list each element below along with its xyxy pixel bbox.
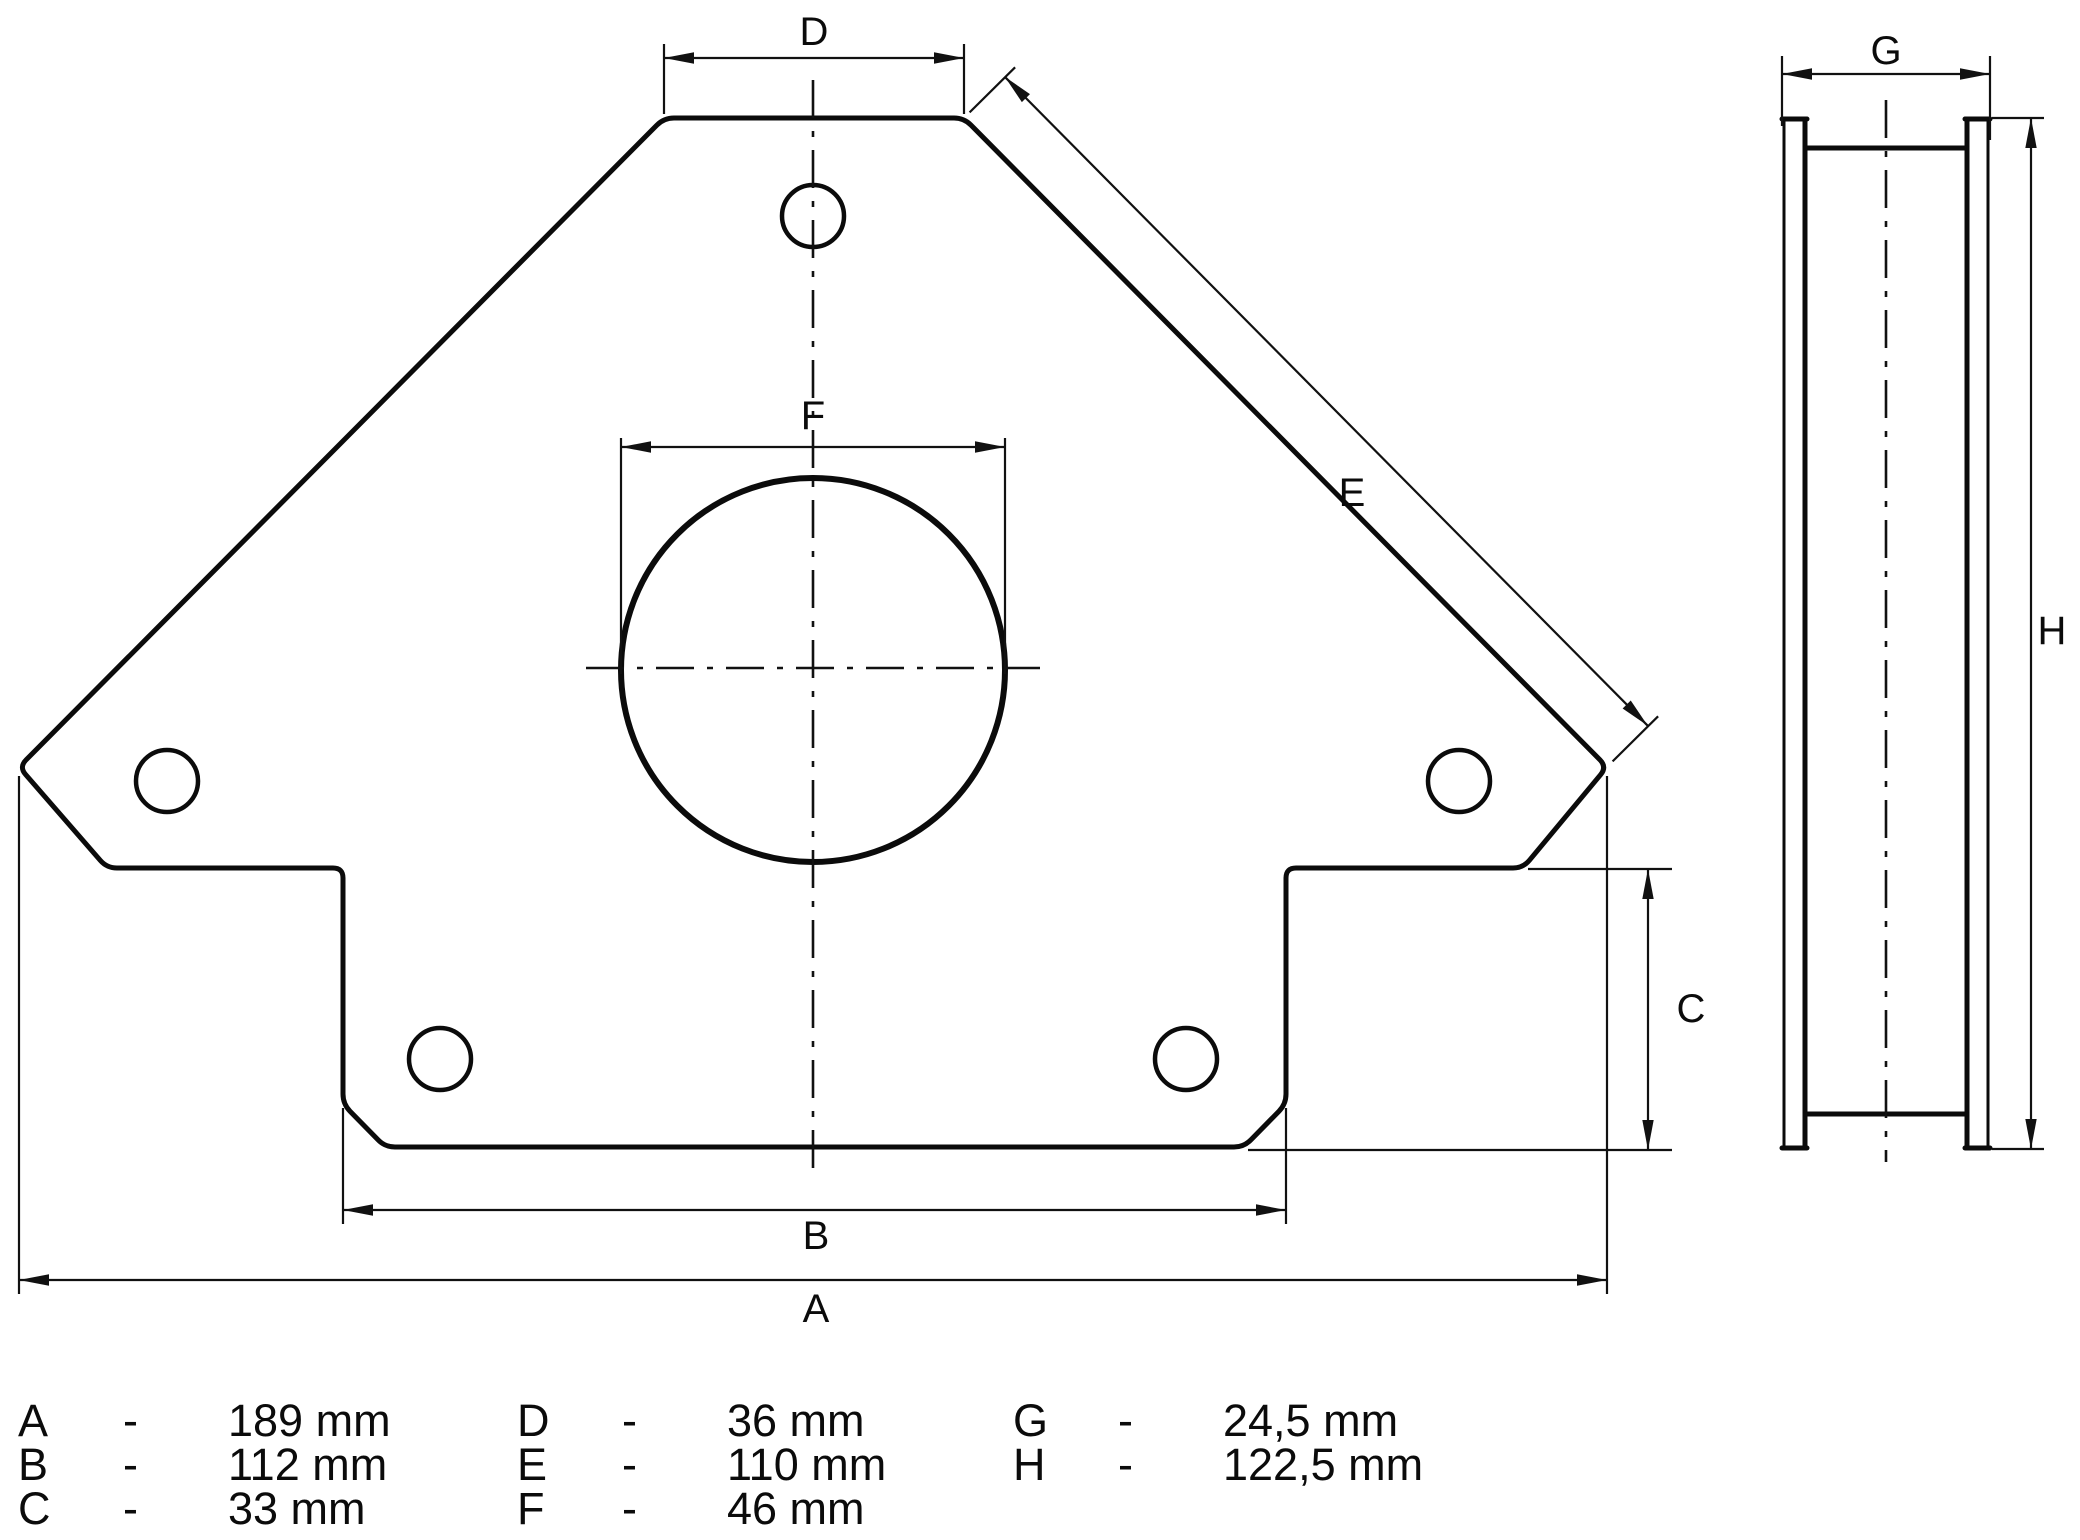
legend-separator: - [622,1487,727,1531]
dim-label-d: D [800,10,829,54]
legend-separator: - [123,1443,228,1487]
legend-column-1: A-189 mm B-112 mm C-33 mm [18,1399,391,1531]
legend-row-g: G-24,5 mm [1013,1399,1423,1443]
legend-letter: B [18,1443,123,1487]
dim-label-e: E [1339,471,1366,515]
legend-letter: D [517,1399,622,1443]
legend-value: 46 mm [727,1487,865,1531]
legend-column-2: D-36 mm E-110 mm F-46 mm [517,1399,886,1531]
legend-value: 110 mm [727,1443,886,1487]
legend-value: 122,5 mm [1223,1443,1423,1487]
dim-label-g: G [1870,29,1901,73]
dim-label-b: B [803,1214,830,1258]
legend-separator: - [123,1487,228,1531]
technical-drawing-page: { "colors": {"ink": "#0b0b0b", "backgrou… [0,0,2080,1540]
legend-separator: - [1118,1399,1223,1443]
side-view: G H [1782,29,2066,1162]
drawing-canvas: D E F C B [0,0,2080,1540]
legend-separator: - [123,1399,228,1443]
hole-bottom-right [1155,1028,1217,1090]
legend-letter: E [517,1443,622,1487]
hole-left [136,750,198,812]
legend-letter: G [1013,1399,1118,1443]
legend-value: 33 mm [228,1487,366,1531]
legend-value: 112 mm [228,1443,387,1487]
dim-label-f: F [801,394,825,438]
legend-row-c: C-33 mm [18,1487,391,1531]
hole-bottom-left [409,1028,471,1090]
legend-row-b: B-112 mm [18,1443,391,1487]
legend-letter: F [517,1487,622,1531]
legend-row-e: E-110 mm [517,1443,886,1487]
legend-separator: - [1118,1443,1223,1487]
hole-right [1428,750,1490,812]
dim-label-h: H [2038,609,2067,653]
legend-separator: - [622,1399,727,1443]
legend-column-3: G-24,5 mm H-122,5 mm [1013,1399,1423,1487]
legend-row-d: D-36 mm [517,1399,886,1443]
legend-letter: H [1013,1443,1118,1487]
legend-row-h: H-122,5 mm [1013,1443,1423,1487]
dimension-c: C [1248,869,1705,1150]
legend-row-a: A-189 mm [18,1399,391,1443]
dim-label-a: A [803,1287,830,1331]
legend-value: 189 mm [228,1399,391,1443]
legend-letter: C [18,1487,123,1531]
dimension-h: H [1992,118,2066,1149]
legend-separator: - [622,1443,727,1487]
legend-value: 24,5 mm [1223,1399,1398,1443]
legend-row-f: F-46 mm [517,1487,886,1531]
front-view: D E F C B [19,10,1705,1331]
legend-value: 36 mm [727,1399,865,1443]
legend-letter: A [18,1399,123,1443]
dim-label-c: C [1677,987,1706,1031]
